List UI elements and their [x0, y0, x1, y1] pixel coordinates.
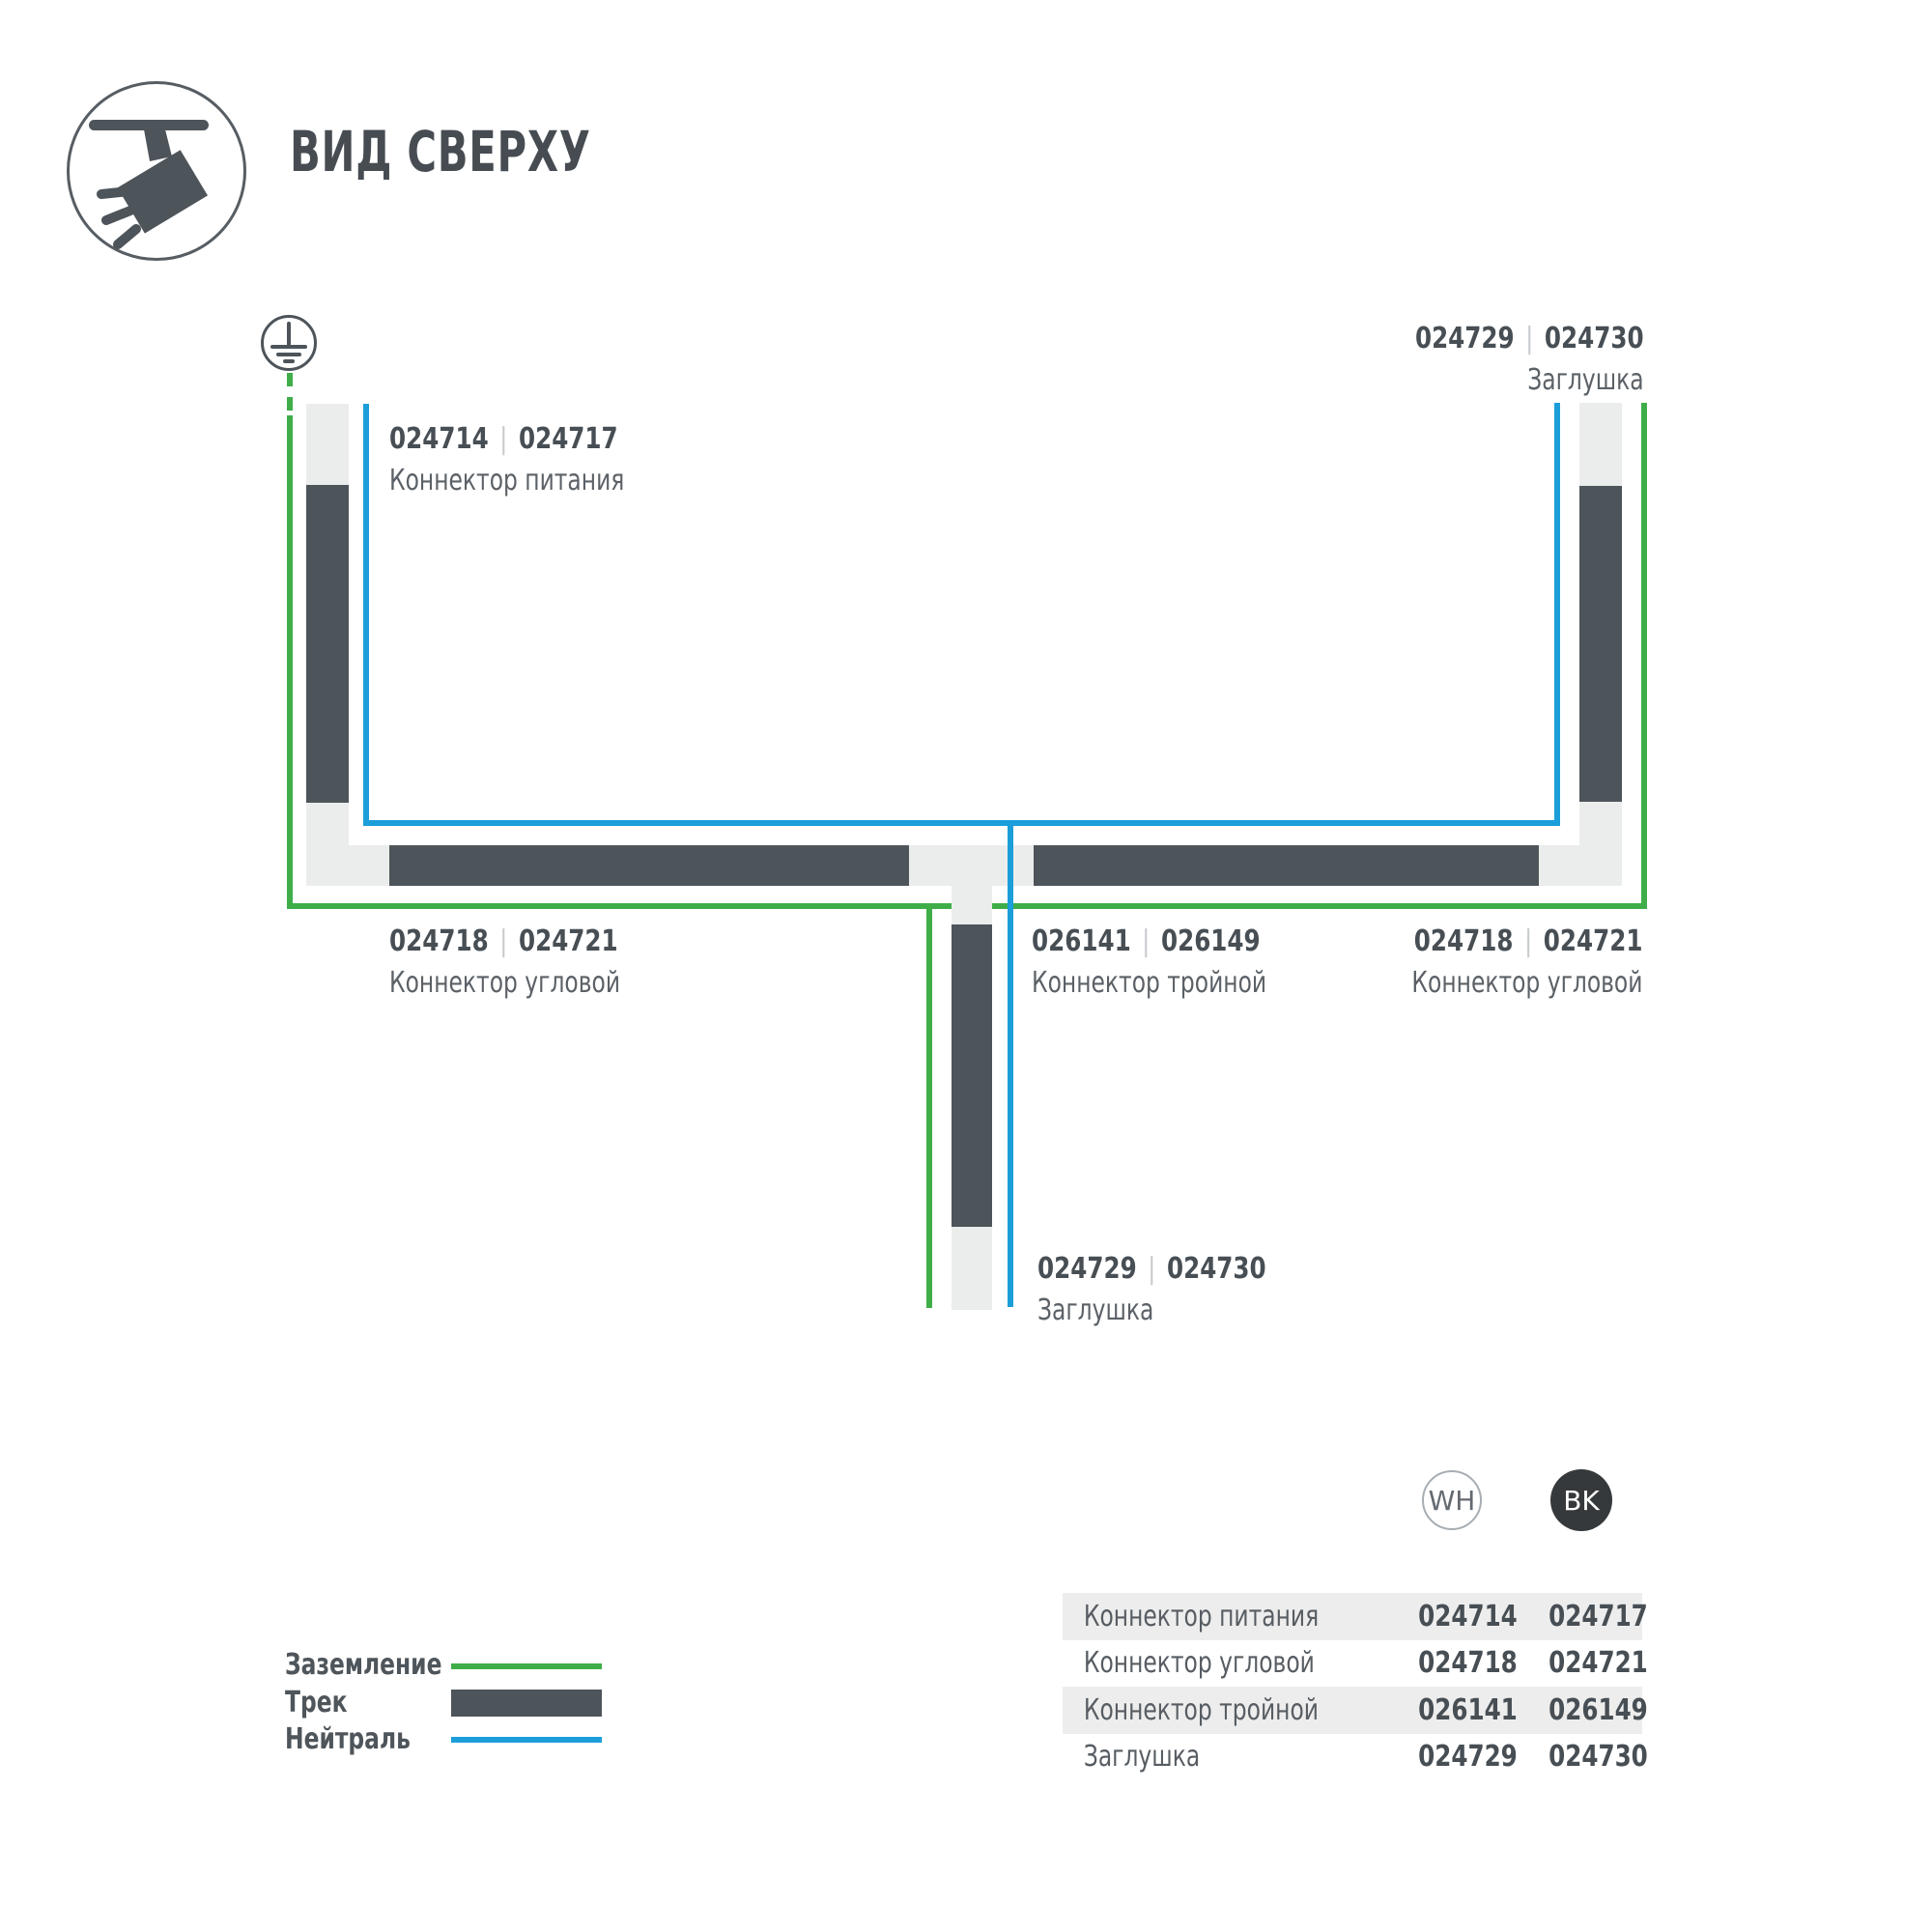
track-segment-middle	[952, 924, 992, 1227]
label-power-connector: 024714|024717 Коннектор питания	[389, 423, 691, 497]
legend-neutral-line-swatch	[451, 1737, 602, 1743]
variant-badge-white: WH	[1422, 1470, 1482, 1530]
label-end-cap-top: 024729|024730 Заглушка	[1365, 323, 1644, 397]
legend-label-track: Трек	[285, 1687, 347, 1719]
label-corner-connector-left: 024718|024721 Коннектор угловой	[389, 925, 685, 1000]
variant-badge-black: BK	[1550, 1469, 1612, 1531]
neutral-line-right	[1554, 403, 1560, 826]
page-title: ВИД СВЕРХУ	[290, 123, 591, 181]
label-corner-connector-right: 024718|024721 Коннектор угловой	[1347, 925, 1642, 1000]
track-segment-bottom-left	[389, 845, 909, 886]
track-segment-left	[306, 485, 349, 803]
table-row: Коннектор тройной 026141 026149	[1063, 1687, 1642, 1734]
table-row: Коннектор питания 024714 024717	[1063, 1593, 1642, 1640]
ground-line-left	[287, 415, 293, 909]
legend-label-ground: Заземление	[285, 1649, 441, 1682]
legend-label-neutral: Нейтраль	[285, 1723, 411, 1756]
legend-track-bar-swatch	[451, 1690, 602, 1717]
neutral-line-top	[363, 820, 1560, 826]
label-end-cap-bottom: 024729|024730 Заглушка	[1037, 1253, 1317, 1327]
ground-line-dashed	[287, 373, 293, 415]
parts-table: Коннектор питания 024714 024717 Коннекто…	[1063, 1593, 1642, 1780]
neutral-line-left	[363, 404, 369, 826]
track-spotlight-icon	[67, 81, 246, 261]
legend-ground-line-swatch	[451, 1663, 602, 1669]
ground-line-branch	[926, 909, 932, 1308]
table-row: Заглушка 024729 024730	[1063, 1734, 1642, 1781]
ground-line-right	[1641, 403, 1647, 909]
earth-ground-icon	[261, 315, 317, 371]
table-row: Коннектор угловой 024718 024721	[1063, 1640, 1642, 1688]
track-segment-right	[1579, 486, 1622, 802]
label-triple-connector: 026141|026149 Коннектор тройной	[1032, 925, 1333, 1000]
track-segment-bottom-right	[1034, 845, 1539, 886]
page: ВИД СВЕРХУ 024714|024717 Коннектор питан…	[0, 0, 1932, 1932]
neutral-line-branch	[1008, 826, 1013, 1307]
